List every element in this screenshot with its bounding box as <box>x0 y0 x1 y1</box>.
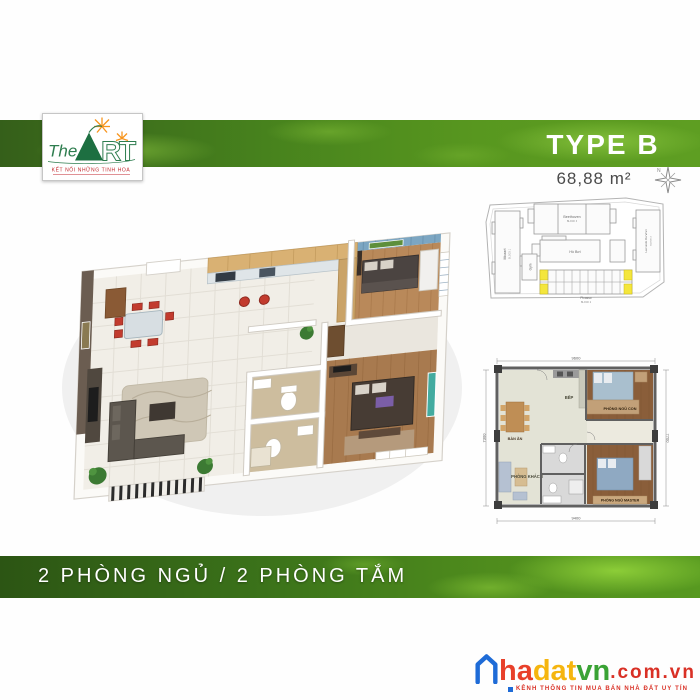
wall-art-icon <box>81 322 90 349</box>
purple-blanket <box>375 396 393 408</box>
floor-plan-3d <box>50 203 470 533</box>
house-outline-icon <box>474 651 499 684</box>
building-mozart <box>492 211 523 293</box>
watermark-domain-suffix: .com.vn <box>610 662 696 684</box>
the-art-logo-icon: The R T KẾT NỐI NHỮNG TINH HOA <box>43 114 140 178</box>
sink-icon <box>259 267 275 277</box>
label-kid-bedroom: PHÒNG NGỦ CON <box>604 406 637 411</box>
building-mozart-label: Mozart <box>503 249 507 260</box>
dim-left: 7300 <box>482 433 487 443</box>
hall-2d <box>587 420 653 444</box>
label-master-bedroom: PHÒNG NGỦ MASTER <box>601 498 640 503</box>
logo-the: The <box>48 142 77 161</box>
unit-type-title: TYPE B <box>538 129 668 161</box>
dim-top: 9600 <box>572 356 582 361</box>
vanity-1 <box>253 378 271 389</box>
building-beethoven <box>528 204 616 234</box>
watermark-part1: ha <box>499 655 533 687</box>
watermark-tagline: KÊNH THÔNG TIN MUA BÁN NHÀ ĐẤT UY TÍN <box>516 686 688 692</box>
unit-area-label: 68,88 m² <box>548 169 640 189</box>
building-mozart-block: BLOCK 1 <box>509 248 512 259</box>
watermark-brand: hadatvn <box>499 658 610 684</box>
watermark-bullet-icon <box>508 687 513 692</box>
room-master-bedroom <box>320 350 437 466</box>
tv-icon <box>88 387 99 422</box>
compass-north-label: N <box>657 168 661 174</box>
building-leonardo-block: BLOCK 4 <box>651 236 653 246</box>
logo-tagline: KẾT NỐI NHỮNG TINH HOA <box>52 167 131 174</box>
building-pool <box>532 236 600 262</box>
the-art-logo: The R T KẾT NỐI NHỮNG TINH HOA <box>42 113 143 181</box>
room-kid-bedroom <box>351 233 450 323</box>
floor-plan-2d: 9600 9400 7300 7700 PHÒNG NGỦ CON <box>481 354 671 526</box>
master-bedroom-2d: PHÒNG NGỦ MASTER <box>587 444 653 504</box>
kid-bedroom-2d: PHÒNG NGỦ CON <box>587 370 653 420</box>
flyer-root: The R T KẾT NỐI NHỮNG TINH HOA TYPE B 68… <box>0 0 700 700</box>
logo-mountain-icon <box>75 133 103 161</box>
building-picasso <box>540 270 632 294</box>
label-dining: BÀN ĂN <box>508 436 523 441</box>
building-pool-label: Hồ Bơi <box>569 250 580 254</box>
shower <box>251 446 272 467</box>
building-picasso-label: Picasso <box>580 296 591 300</box>
compass-icon: N <box>653 165 683 195</box>
vanity-2 <box>297 425 313 436</box>
dim-bottom: 9400 <box>572 516 582 521</box>
dining-table <box>124 310 163 339</box>
kid-wardrobe <box>419 249 438 291</box>
unit-summary-caption: 2 PHÒNG NGỦ / 2 PHÒNG TẮM <box>38 565 407 588</box>
dim-right: 7700 <box>666 434 671 444</box>
wood-cabinet <box>105 288 126 319</box>
building-connector <box>610 240 625 262</box>
watermark-nhadatvn: hadatvn .com.vn KÊNH THÔNG TIN MUA BÁN N… <box>474 651 696 692</box>
watermark-tagline-row: KÊNH THÔNG TIN MUA BÁN NHÀ ĐẤT UY TÍN <box>508 686 696 692</box>
building-beethoven-label: Beethoven <box>563 215 580 219</box>
teal-art-icon <box>427 372 436 416</box>
watermark-part2: dat <box>533 655 577 687</box>
building-beethoven-block: BLOCK 3 <box>567 220 578 223</box>
master-wardrobe-2d <box>639 446 651 480</box>
label-kitchen: BẾP <box>565 395 574 400</box>
watermark-part3: vn <box>576 655 610 687</box>
building-picasso-block: BLOCK 2 <box>581 301 592 304</box>
watermark-logo-row: hadatvn .com.vn <box>474 651 696 684</box>
label-living: PHÒNG KHÁCH <box>511 474 543 479</box>
coffee-table <box>149 402 175 422</box>
site-plan: Mozart BLOCK 1 Beethoven BLOCK 3 Hồ Bơi … <box>478 192 668 306</box>
building-leonardo-label: Leonardo Da Vinci <box>644 229 648 252</box>
building-gym-label: Gym <box>529 263 533 270</box>
